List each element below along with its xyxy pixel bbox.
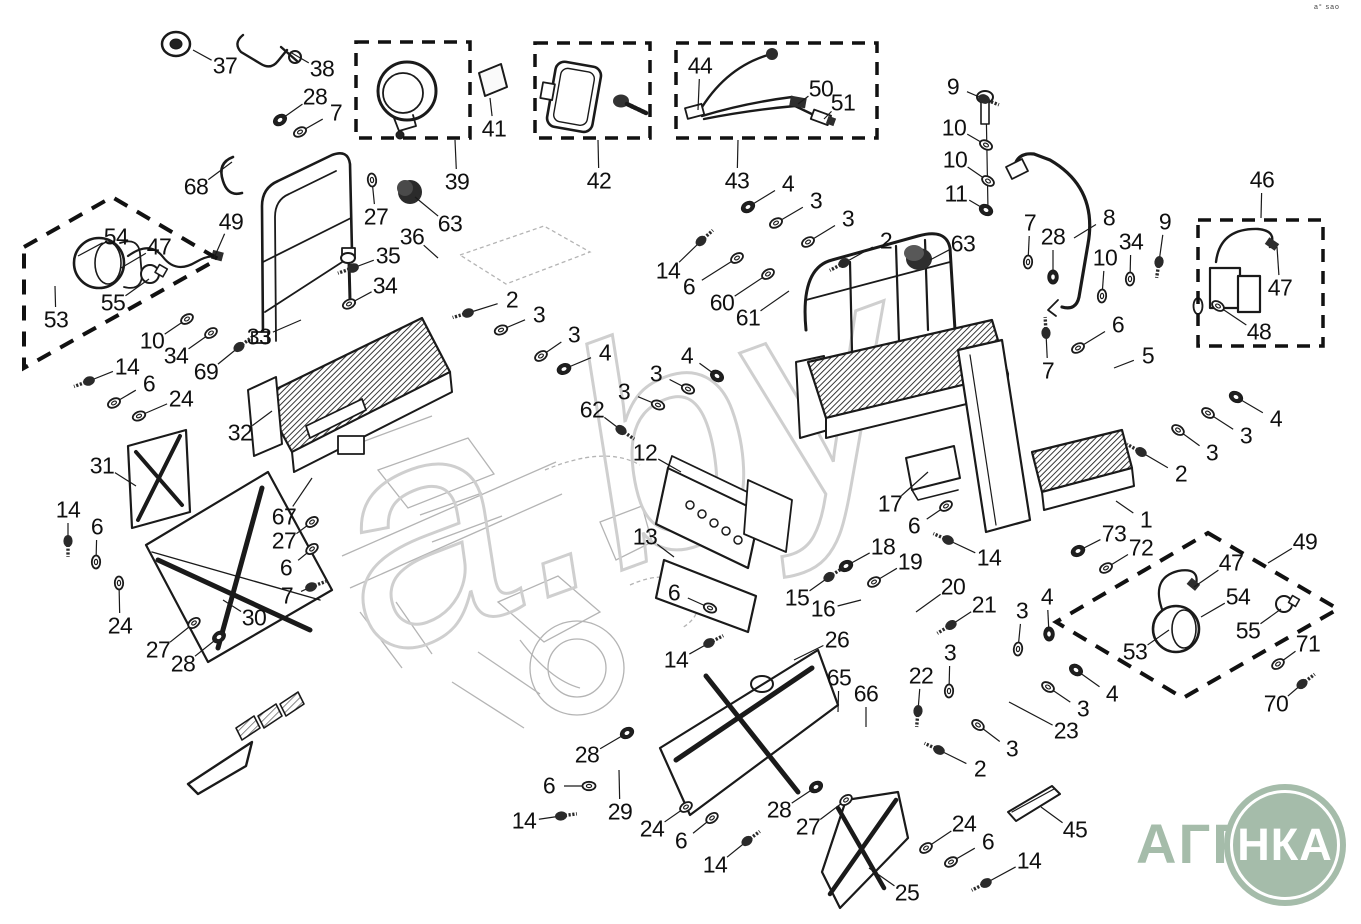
callout-label-3: 3 xyxy=(533,304,545,327)
callout-label-4: 4 xyxy=(681,345,693,368)
bolt-glyph xyxy=(453,307,475,319)
leader-line xyxy=(1114,360,1134,368)
washer-glyph xyxy=(304,515,319,529)
leader-line xyxy=(1116,501,1133,513)
bolt-glyph xyxy=(74,375,96,388)
callout-label-28: 28 xyxy=(1041,226,1066,249)
callout-label-21: 21 xyxy=(972,594,997,617)
callout-label-50: 50 xyxy=(809,78,834,101)
callout-label-6: 6 xyxy=(908,515,920,538)
callout-label-6: 6 xyxy=(280,557,292,580)
logo-text-nka: НКА xyxy=(1237,819,1332,871)
leader-line xyxy=(1041,807,1063,823)
washer-glyph xyxy=(980,174,995,188)
callout-label-7: 7 xyxy=(330,102,342,125)
callout-label-63: 63 xyxy=(438,213,463,236)
box-39 xyxy=(356,42,470,138)
nut-glyph xyxy=(1048,270,1058,284)
parts-diagram-page: a.by xyxy=(0,0,1361,924)
callout-label-28: 28 xyxy=(575,744,600,767)
callout-label-2: 2 xyxy=(974,758,986,781)
callout-label-3: 3 xyxy=(944,642,956,665)
leader-line xyxy=(293,478,312,506)
callout-label-6: 6 xyxy=(683,276,695,299)
part-clamp-38 xyxy=(237,35,301,66)
callout-label-45: 45 xyxy=(1063,819,1088,842)
nut-glyph xyxy=(807,779,824,795)
exploded-parts-drawing: a.by xyxy=(0,0,1361,924)
callout-label-10: 10 xyxy=(942,117,967,140)
leader-line xyxy=(1261,193,1262,218)
bolt-glyph xyxy=(702,636,724,650)
nut-glyph xyxy=(618,725,635,741)
leader-line xyxy=(1074,224,1096,238)
callout-label-72: 72 xyxy=(1129,537,1154,560)
callout-label-73: 73 xyxy=(1102,523,1127,546)
callout-label-17: 17 xyxy=(878,493,903,516)
callout-label-35: 35 xyxy=(376,245,401,268)
callout-label-10: 10 xyxy=(1093,247,1118,270)
callout-label-25: 25 xyxy=(895,882,920,905)
callout-label-14: 14 xyxy=(664,649,689,672)
bolt-glyph xyxy=(821,568,842,584)
washer-glyph xyxy=(1013,642,1023,656)
callout-label-3: 3 xyxy=(810,190,822,213)
callout-label-65: 65 xyxy=(827,667,852,690)
leader-line xyxy=(916,594,941,612)
callout-label-36: 36 xyxy=(400,226,425,249)
callout-label-49: 49 xyxy=(1293,531,1318,554)
callout-label-14: 14 xyxy=(977,547,1002,570)
callout-label-31: 31 xyxy=(90,455,115,478)
leader-line xyxy=(1009,702,1053,725)
callout-label-7: 7 xyxy=(1024,212,1036,235)
washer-glyph xyxy=(1200,406,1215,420)
callout-label-8: 8 xyxy=(1103,207,1115,230)
box-49-right xyxy=(1056,533,1338,698)
washer-glyph xyxy=(179,312,194,326)
bolt-glyph xyxy=(1154,255,1165,277)
washer-glyph xyxy=(203,326,218,340)
callout-label-48: 48 xyxy=(1247,321,1272,344)
callout-label-7: 7 xyxy=(281,585,293,608)
callout-label-3: 3 xyxy=(1240,425,1252,448)
logo-circle: НКА xyxy=(1224,784,1346,906)
callout-label-70: 70 xyxy=(1264,693,1289,716)
part-cable-46 xyxy=(1194,229,1280,314)
callout-label-34: 34 xyxy=(373,275,398,298)
leader-line xyxy=(930,250,950,260)
part-mirror-42 xyxy=(536,59,646,134)
callout-label-37: 37 xyxy=(213,55,238,78)
callout-label-15: 15 xyxy=(785,587,810,610)
callout-label-3: 3 xyxy=(568,324,580,347)
callout-label-24: 24 xyxy=(640,818,665,841)
callout-label-16: 16 xyxy=(811,598,836,621)
callout-label-9: 9 xyxy=(1159,211,1171,234)
callout-label-2: 2 xyxy=(506,289,518,312)
leader-line xyxy=(838,691,839,712)
callout-label-68: 68 xyxy=(184,176,209,199)
callout-label-41: 41 xyxy=(482,118,507,141)
callout-label-11: 11 xyxy=(945,183,968,206)
callout-label-62: 62 xyxy=(580,399,605,422)
part-lamp-39 xyxy=(378,62,436,139)
part-bumper-63-right xyxy=(904,245,932,270)
callout-label-3: 3 xyxy=(842,208,854,231)
callout-label-4: 4 xyxy=(782,173,794,196)
callout-label-7: 7 xyxy=(1042,360,1054,383)
leader-line xyxy=(415,197,438,216)
bolt-glyph xyxy=(554,811,576,822)
callout-label-14: 14 xyxy=(512,810,537,833)
washer-glyph xyxy=(583,782,596,790)
callout-label-4: 4 xyxy=(1106,683,1118,706)
callout-label-12: 12 xyxy=(633,442,658,465)
callout-label-3: 3 xyxy=(618,381,630,404)
washer-glyph xyxy=(1070,341,1085,355)
washer-glyph xyxy=(866,575,881,589)
washer-glyph xyxy=(970,718,985,732)
nut-glyph xyxy=(1067,662,1084,678)
bolt-glyph xyxy=(63,535,72,557)
leader-line xyxy=(1194,570,1218,587)
leader-line xyxy=(737,140,738,168)
callout-label-3: 3 xyxy=(1077,698,1089,721)
washer-glyph xyxy=(918,841,933,855)
callout-label-6: 6 xyxy=(91,516,103,539)
callout-label-27: 27 xyxy=(364,206,389,229)
washer-glyph xyxy=(1040,680,1055,694)
callout-label-34: 34 xyxy=(164,345,189,368)
callout-label-18: 18 xyxy=(871,536,896,559)
nut-glyph xyxy=(271,112,288,128)
callout-label-53: 53 xyxy=(44,309,69,332)
washer-glyph xyxy=(292,125,307,138)
callout-label-53: 53 xyxy=(1123,641,1148,664)
callout-label-3: 3 xyxy=(1206,442,1218,465)
leader-line xyxy=(619,770,620,799)
callout-label-13: 13 xyxy=(633,526,658,549)
leader-line xyxy=(273,320,301,332)
callout-label-24: 24 xyxy=(169,388,194,411)
bolt-glyph xyxy=(937,618,958,633)
corner-code: a° sao xyxy=(1314,4,1340,11)
callout-label-49: 49 xyxy=(219,211,244,234)
part-bolt-35 xyxy=(341,253,355,300)
callout-label-24: 24 xyxy=(952,813,977,836)
callout-label-61: 61 xyxy=(736,307,761,330)
leader-line xyxy=(1277,247,1279,275)
callout-label-39: 39 xyxy=(445,171,470,194)
washer-glyph xyxy=(1097,289,1106,303)
callout-label-14: 14 xyxy=(56,499,81,522)
leader-line xyxy=(424,245,438,258)
part-panel-31 xyxy=(128,430,190,528)
callout-label-69: 69 xyxy=(194,361,219,384)
part-reflector-arrow xyxy=(188,692,304,794)
callout-label-47: 47 xyxy=(147,236,172,259)
callout-label-6: 6 xyxy=(543,775,555,798)
callout-label-2: 2 xyxy=(880,230,892,253)
callout-label-23: 23 xyxy=(1054,720,1079,743)
callout-label-34: 34 xyxy=(1119,231,1144,254)
bolt-glyph xyxy=(913,705,923,727)
bolt-glyph xyxy=(1041,317,1051,339)
callout-label-3: 3 xyxy=(1016,600,1028,623)
callout-label-42: 42 xyxy=(587,170,612,193)
part-step-1 xyxy=(1032,430,1134,510)
washer-glyph xyxy=(1270,657,1285,671)
leader-line xyxy=(208,162,232,180)
callout-label-5: 5 xyxy=(1142,345,1154,368)
callout-label-4: 4 xyxy=(599,342,611,365)
washer-glyph xyxy=(1126,272,1135,285)
callout-label-47: 47 xyxy=(1219,552,1244,575)
nut-glyph xyxy=(1043,627,1054,642)
callout-label-14: 14 xyxy=(115,356,140,379)
callout-label-30: 30 xyxy=(242,607,267,630)
part-bolt-stack-9-10-11 xyxy=(977,91,993,210)
washer-glyph xyxy=(367,173,377,187)
callout-label-67: 67 xyxy=(272,506,297,529)
washer-glyph xyxy=(978,138,993,152)
callout-label-28: 28 xyxy=(767,799,792,822)
washer-glyph xyxy=(1170,423,1185,437)
callout-label-1: 1 xyxy=(1140,509,1152,532)
callout-label-71: 71 xyxy=(1296,633,1321,656)
callout-label-27: 27 xyxy=(146,639,171,662)
callout-label-2: 2 xyxy=(1175,463,1187,486)
callout-label-14: 14 xyxy=(656,260,681,283)
part-guard-frame-33 xyxy=(252,153,355,343)
callout-label-54: 54 xyxy=(1226,586,1251,609)
callout-label-29: 29 xyxy=(608,801,633,824)
callout-label-14: 14 xyxy=(1017,850,1042,873)
callout-label-38: 38 xyxy=(310,58,335,81)
leader-line xyxy=(1268,548,1292,563)
callout-label-60: 60 xyxy=(710,292,735,315)
washer-glyph xyxy=(943,855,958,869)
callout-label-3: 3 xyxy=(650,363,662,386)
callout-label-66: 66 xyxy=(854,683,879,706)
bolt-glyph xyxy=(972,876,994,890)
watermark-text: a.by xyxy=(279,189,967,724)
washer-glyph xyxy=(131,410,146,423)
leader-line xyxy=(838,600,861,606)
callout-label-27: 27 xyxy=(272,530,297,553)
callout-label-46: 46 xyxy=(1250,169,1275,192)
callout-label-14: 14 xyxy=(703,854,728,877)
part-cap-37 xyxy=(162,32,190,56)
callout-label-51: 51 xyxy=(831,92,856,115)
callout-label-55: 55 xyxy=(1236,620,1261,643)
leader-line xyxy=(55,286,56,307)
callout-label-6: 6 xyxy=(1112,314,1124,337)
leader-line xyxy=(598,140,599,168)
washer-glyph xyxy=(341,297,356,310)
washer-glyph xyxy=(1098,561,1113,575)
callout-label-32: 32 xyxy=(228,422,253,445)
washer-glyph xyxy=(115,576,124,589)
bolt-glyph xyxy=(924,743,946,756)
nut-glyph xyxy=(1069,543,1086,558)
callout-label-43: 43 xyxy=(725,170,750,193)
leader-line xyxy=(1260,609,1281,624)
callout-label-22: 22 xyxy=(909,665,934,688)
leader-line xyxy=(193,50,212,60)
bolt-glyph xyxy=(1127,444,1148,459)
callout-label-4: 4 xyxy=(1041,586,1053,609)
callout-label-9: 9 xyxy=(947,76,959,99)
bolt-glyph xyxy=(933,533,955,546)
callout-label-28: 28 xyxy=(171,653,196,676)
bolt-glyph xyxy=(1294,674,1314,691)
callout-label-28: 28 xyxy=(303,86,328,109)
callout-label-3: 3 xyxy=(1006,738,1018,761)
callout-label-6: 6 xyxy=(668,582,680,605)
callout-label-24: 24 xyxy=(108,615,133,638)
callout-label-47: 47 xyxy=(1268,277,1293,300)
leader-line xyxy=(1201,603,1225,617)
callout-label-44: 44 xyxy=(688,55,713,78)
callout-label-63: 63 xyxy=(951,233,976,256)
washer-glyph xyxy=(1023,255,1032,268)
washer-glyph xyxy=(945,684,954,697)
callout-label-4: 4 xyxy=(1270,408,1282,431)
callout-label-33: 33 xyxy=(247,326,272,349)
part-pad-41 xyxy=(479,64,507,96)
callout-label-54: 54 xyxy=(104,226,129,249)
callout-label-6: 6 xyxy=(143,373,155,396)
callout-label-6: 6 xyxy=(675,830,687,853)
nut-glyph xyxy=(1227,389,1244,405)
washer-glyph xyxy=(92,555,101,568)
leader-line xyxy=(455,140,456,169)
nut-glyph xyxy=(977,202,994,218)
bolt-glyph xyxy=(739,831,759,848)
callout-label-20: 20 xyxy=(941,576,966,599)
nut-glyph xyxy=(739,199,756,215)
callout-label-10: 10 xyxy=(140,330,165,353)
washer-glyph xyxy=(106,396,121,410)
callout-label-27: 27 xyxy=(796,816,821,839)
callout-label-10: 10 xyxy=(943,149,968,172)
callout-label-6: 6 xyxy=(982,831,994,854)
callout-label-55: 55 xyxy=(101,292,126,315)
callout-label-26: 26 xyxy=(825,629,850,652)
callout-label-19: 19 xyxy=(898,551,923,574)
leader-line xyxy=(490,98,492,116)
